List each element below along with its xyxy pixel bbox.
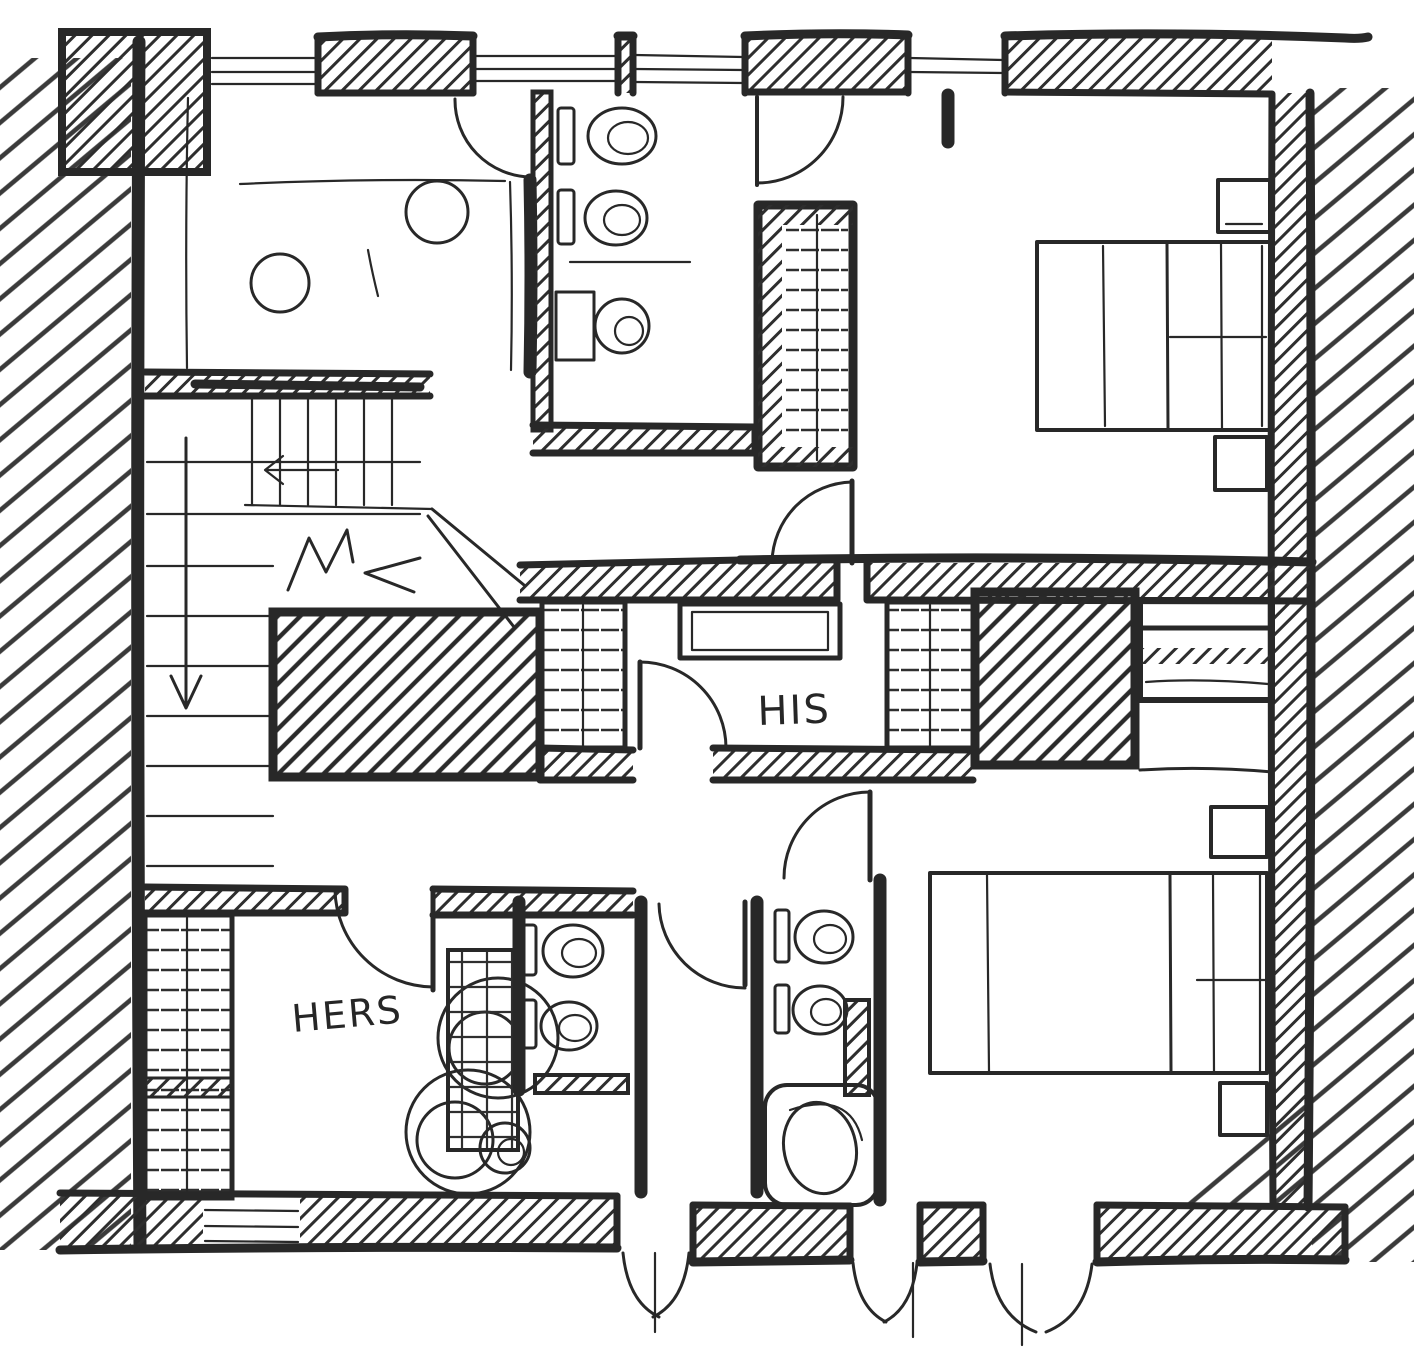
label-hers: HERS [290,987,405,1041]
closet-divider-hatch [145,1078,232,1097]
closet-cap-hatch [758,205,853,225]
closet-linen [1140,600,1272,772]
bedroom-2 [930,807,1267,1135]
sink [556,292,649,360]
door-arc-bath-top [757,97,843,183]
window-top-3 [635,55,743,83]
wall-edge-inner [318,92,1272,94]
pen-stroke [368,250,378,296]
bed-outline [930,873,1267,1073]
wall-bottom-segment [60,1193,203,1250]
door-arc-corridor [659,904,745,988]
bed-fold-line [1170,875,1171,1071]
counter-line [186,98,188,368]
wall-mid-segment [520,563,837,600]
bed-fold-line [1103,246,1105,426]
bed-fold-line [1167,244,1168,428]
french-door-pair [990,1264,1092,1345]
sketch-canvas: HIS [0,0,1414,1347]
desk-line [240,180,505,184]
landing-edge [245,505,432,509]
pen-stroke [1140,768,1272,772]
wall-edge [318,35,473,37]
stair-up-arrow [265,456,338,484]
half-wall-hatched [535,1075,628,1093]
wall-bottom-segment [693,1205,850,1262]
stair-break-line [288,530,353,590]
closet-his: HIS [540,602,973,780]
window-top-1 [212,58,316,84]
closet-cap-hatch [758,447,853,467]
stair-down-arrow [171,438,201,708]
hatch-outside-right [1312,88,1414,1262]
toilet [523,925,603,977]
bed-fold-line [987,875,989,1071]
wall-mid-band [520,481,1312,601]
wall-edge [693,1259,1345,1262]
wall-bottom-segment [920,1205,983,1262]
floor-void-hatched [273,612,540,777]
door-arc-top-left-room [455,99,531,177]
hatch-outside-left [0,58,131,1250]
french-door-pair [853,1263,917,1337]
toilet [775,985,847,1034]
wall-bottom-segment [300,1196,617,1250]
window-top-2 [475,56,616,81]
floor-plan-sketch: HIS [0,0,1414,1347]
bathroom-2 [765,910,878,1205]
wall-bottom-segment [1097,1205,1345,1262]
toilet [558,108,656,164]
wall-bath-left [533,92,551,430]
suite-hers: HERS [145,915,558,1198]
door-arc-vestibule [772,482,852,562]
door-arc-hers [335,890,433,987]
toilet [523,1000,597,1050]
wall-edge [60,1247,617,1250]
wall-top-segment [745,37,908,93]
label-his: HIS [757,686,832,735]
vanity-counter [448,950,518,1150]
wall-top-segment [318,37,473,93]
exterior-walls [60,32,1368,1262]
stair-direction-mark [365,558,420,592]
wall-top-segment [1005,37,1272,93]
wall-left [138,42,140,1247]
bed-pillow-lines [1170,244,1266,428]
nightstand [1220,1083,1267,1135]
closet-shelving-hers [145,915,232,1198]
wall-edge [740,558,1312,562]
bathtub [765,1085,878,1205]
closet-island-inner [692,612,828,650]
bed-pillow-lines [1197,875,1265,1071]
toilet [775,910,853,963]
bedroom-1 [1037,180,1270,490]
shelf-line [1146,680,1268,684]
window-top-4 [910,58,1003,73]
half-wall-hatched [845,1000,869,1095]
toilet [558,190,647,245]
desk-line [510,182,512,370]
shelf-hatch [1142,648,1270,664]
french-doors [623,1253,1092,1345]
nightstand [1211,807,1267,857]
wall-edge [618,34,1368,39]
wall-right [1272,93,1310,1207]
door-arc-his [640,662,726,748]
nightstand [1215,437,1267,490]
stool-circle [406,181,468,243]
window-bottom [205,1210,298,1242]
wall-edge [1308,93,1311,1207]
stool-circle [251,254,309,312]
closet-side-hatch [758,225,782,447]
french-door-pair [623,1253,689,1332]
floor-void-hatched [975,592,1135,765]
counter-edge-bold [195,384,420,387]
door-arc-bath-2 [784,792,870,878]
closet-block [758,205,853,467]
